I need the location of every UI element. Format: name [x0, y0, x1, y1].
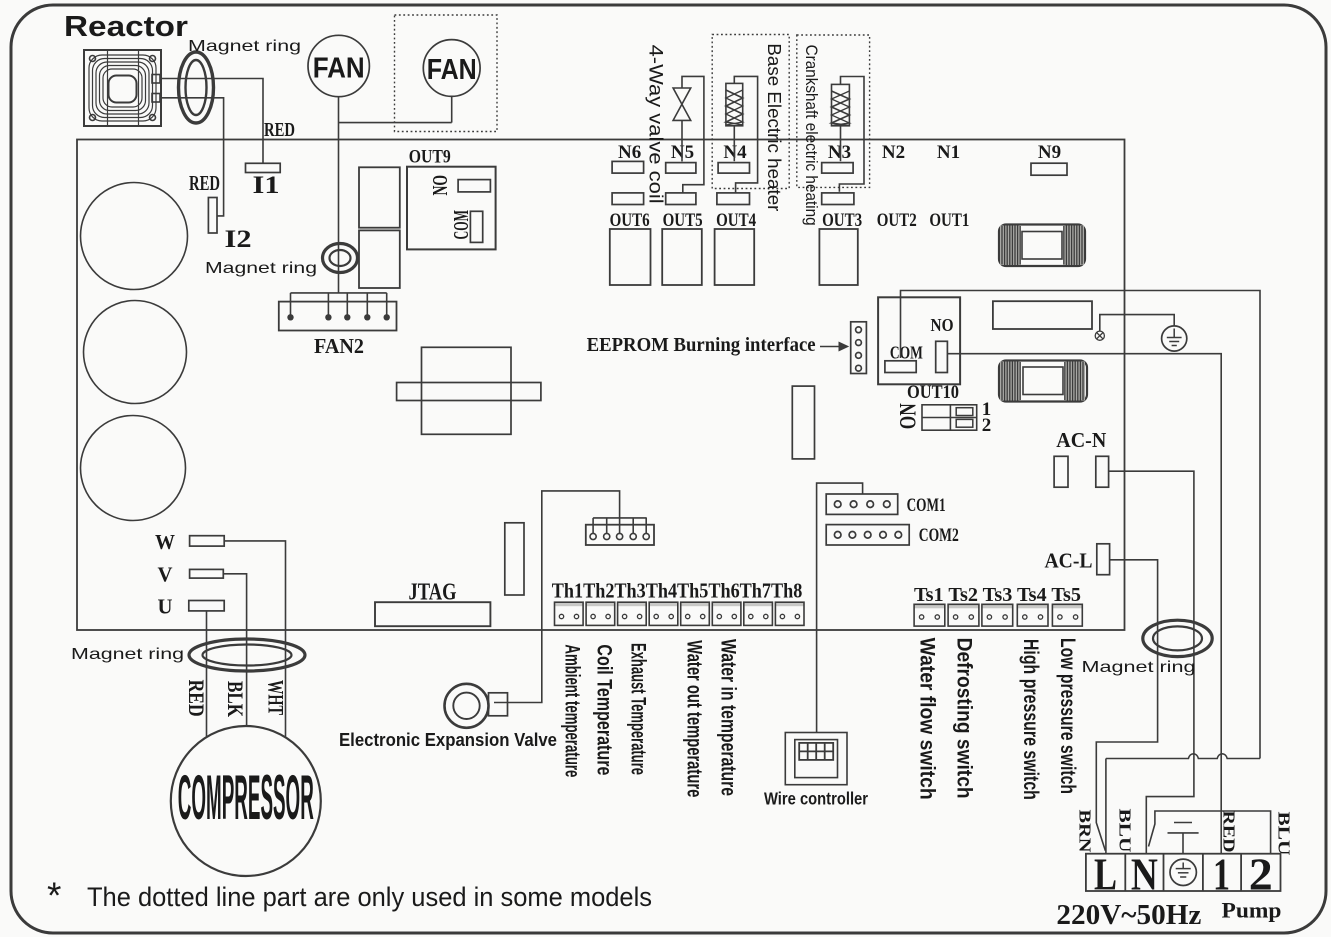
svg-text:L: L	[1094, 849, 1117, 900]
svg-text:RED: RED	[264, 119, 295, 141]
svg-text:U: U	[158, 595, 173, 619]
svg-text:Water out temperature: Water out temperature	[683, 640, 706, 797]
svg-text:COMPRESSOR: COMPRESSOR	[178, 763, 314, 833]
svg-text:OUT9: OUT9	[409, 148, 451, 168]
svg-text:WHT: WHT	[264, 680, 289, 715]
svg-text:Water flow switch: Water flow switch	[915, 638, 938, 800]
svg-text:OUT5: OUT5	[663, 211, 703, 231]
svg-text:BLU: BLU	[1275, 812, 1294, 856]
svg-text:2: 2	[1249, 849, 1273, 900]
svg-text:N4: N4	[723, 142, 747, 163]
svg-text:BLU: BLU	[1116, 809, 1135, 853]
svg-text:RED: RED	[1220, 811, 1239, 853]
svg-text:COM: COM	[449, 210, 473, 240]
svg-text:COM: COM	[890, 343, 923, 363]
svg-text:OUT3: OUT3	[822, 211, 862, 231]
svg-text:Magnet ring: Magnet ring	[205, 260, 317, 277]
svg-text:Exhaust Temperature: Exhaust Temperature	[627, 643, 650, 775]
svg-text:Coil Temperature: Coil Temperature	[593, 644, 616, 775]
svg-text:ON: ON	[896, 403, 921, 429]
svg-text:OUT10: OUT10	[907, 383, 959, 403]
svg-text:RED: RED	[184, 680, 209, 717]
svg-text:N3: N3	[828, 142, 851, 163]
svg-text:W: W	[155, 530, 175, 554]
svg-text:Defrosting switch: Defrosting switch	[953, 638, 976, 799]
svg-text:Magnet ring: Magnet ring	[188, 38, 301, 55]
svg-text:Base Electric heater: Base Electric heater	[764, 43, 785, 211]
svg-text:4-Way valve coil: 4-Way valve coil	[645, 45, 666, 204]
svg-text:High pressure switch: High pressure switch	[1019, 639, 1042, 800]
svg-text:Low pressure switch: Low pressure switch	[1056, 638, 1079, 794]
svg-text:1: 1	[1213, 849, 1230, 900]
svg-text:Electronic Expansion Valve: Electronic Expansion Valve	[339, 730, 557, 750]
svg-text:N2: N2	[882, 142, 905, 163]
svg-text:N6: N6	[618, 142, 641, 163]
svg-text:N: N	[1131, 849, 1158, 900]
svg-text:V: V	[158, 563, 173, 587]
svg-text:Pump: Pump	[1222, 898, 1282, 923]
svg-text:Wire controller: Wire controller	[764, 789, 868, 809]
svg-text:AC-N: AC-N	[1056, 428, 1106, 452]
svg-text:N1: N1	[937, 142, 960, 163]
svg-text:BRN: BRN	[1076, 810, 1095, 853]
svg-text:Th1Th2Th3Th4Th5Th6Th7Th8: Th1Th2Th3Th4Th5Th6Th7Th8	[552, 579, 803, 603]
svg-text:OUT1: OUT1	[929, 211, 969, 231]
svg-text:FAN: FAN	[313, 53, 365, 85]
svg-text:OUT4: OUT4	[716, 211, 756, 231]
svg-text:OUT6: OUT6	[610, 211, 650, 231]
svg-text:Ts1 Ts2 Ts3 Ts4 Ts5: Ts1 Ts2 Ts3 Ts4 Ts5	[914, 584, 1081, 606]
svg-text:N9: N9	[1038, 142, 1061, 163]
svg-text:Water in temperature: Water in temperature	[717, 639, 740, 796]
svg-text:BLK: BLK	[223, 681, 248, 717]
svg-text:220V~50Hz: 220V~50Hz	[1056, 900, 1201, 931]
svg-text:Reactor: Reactor	[64, 11, 188, 43]
svg-text:NO: NO	[931, 315, 954, 335]
svg-text:COM2: COM2	[919, 526, 959, 546]
svg-text:OUT2: OUT2	[877, 211, 917, 231]
svg-text:2: 2	[982, 415, 992, 436]
svg-text:COM1: COM1	[907, 496, 946, 516]
svg-text:FAN2: FAN2	[314, 334, 364, 358]
svg-text:The dotted line part are only: The dotted line part are only used in so…	[87, 882, 652, 912]
svg-text:I1: I1	[253, 172, 280, 199]
svg-text:*: *	[47, 875, 61, 916]
svg-text:EEPROM Burning interface: EEPROM Burning interface	[587, 335, 816, 356]
svg-text:I2: I2	[225, 226, 252, 253]
svg-text:Magnet ring: Magnet ring	[71, 646, 184, 663]
svg-text:NO: NO	[428, 175, 452, 196]
svg-text:Crankshaft electric heating: Crankshaft electric heating	[802, 45, 821, 226]
svg-text:FAN: FAN	[427, 54, 477, 86]
svg-text:Magnet ring: Magnet ring	[1082, 659, 1196, 676]
svg-text:Ambient temperature: Ambient temperature	[561, 644, 584, 777]
svg-text:AC-L: AC-L	[1045, 549, 1093, 573]
svg-text:RED: RED	[189, 171, 220, 195]
